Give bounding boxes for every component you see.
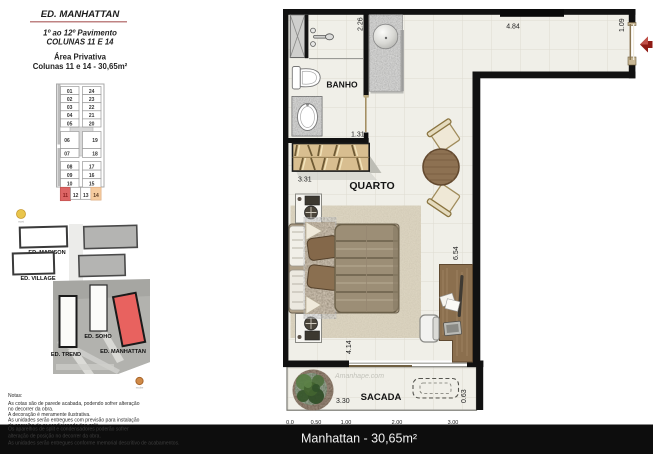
svg-text:15: 15 [89, 182, 95, 188]
svg-text:COLUNAS 11 E 14: COLUNAS 11 E 14 [46, 38, 114, 47]
svg-text:3.30: 3.30 [336, 398, 350, 405]
svg-text:mube: mube [136, 386, 144, 390]
svg-text:2.26: 2.26 [358, 17, 365, 31]
svg-text:0.63: 0.63 [461, 389, 468, 403]
svg-text:12: 12 [73, 193, 79, 199]
svg-text:ED. MANHATTAN: ED. MANHATTAN [100, 349, 146, 355]
svg-text:Amanhape.com: Amanhape.com [334, 373, 384, 380]
svg-text:04: 04 [67, 113, 73, 119]
svg-text:4.84: 4.84 [506, 24, 520, 31]
svg-text:03: 03 [67, 105, 73, 111]
svg-text:As unidades serão entregues co: As unidades serão entregues conforme mem… [8, 441, 179, 447]
svg-text:Os aparelhos de split e conden: Os aparelhos de split e condensadores po… [8, 427, 129, 433]
svg-text:QUARTO: QUARTO [349, 180, 394, 192]
svg-text:20: 20 [89, 121, 95, 127]
svg-text:22: 22 [89, 105, 95, 111]
svg-text:1.31: 1.31 [351, 132, 365, 139]
svg-text:23: 23 [89, 97, 95, 103]
svg-text:18: 18 [92, 152, 98, 158]
svg-text:Colunas 11 e 14 - 30,65m²: Colunas 11 e 14 - 30,65m² [33, 62, 128, 71]
svg-text:05: 05 [67, 121, 73, 127]
svg-text:17: 17 [89, 164, 95, 170]
svg-text:6.54: 6.54 [453, 246, 460, 260]
svg-text:BANHO: BANHO [326, 80, 358, 90]
svg-text:01: 01 [67, 89, 73, 95]
svg-text:ED. SOHO: ED. SOHO [84, 334, 112, 340]
svg-text:1.09: 1.09 [619, 18, 626, 32]
svg-text:ED. TREND: ED. TREND [51, 352, 81, 358]
svg-text:16: 16 [89, 173, 95, 179]
svg-text:14: 14 [93, 193, 99, 199]
svg-text:07: 07 [64, 152, 70, 158]
svg-text:02: 02 [67, 97, 73, 103]
svg-text:SACADA: SACADA [361, 392, 402, 403]
svg-text:1º ao 12º Pavimento: 1º ao 12º Pavimento [43, 29, 117, 38]
svg-text:Manhattan - 30,65m²: Manhattan - 30,65m² [301, 432, 417, 446]
svg-text:ED. VILLAGE: ED. VILLAGE [20, 276, 55, 282]
svg-text:10: 10 [67, 182, 73, 188]
svg-text:ED. MANHATTAN: ED. MANHATTAN [41, 9, 121, 20]
svg-text:alteração de posição no decorr: alteração de posição no decorrer da obra… [8, 434, 101, 440]
svg-text:13: 13 [83, 193, 89, 199]
svg-text:Área Privativa: Área Privativa [54, 53, 107, 62]
svg-text:21: 21 [89, 113, 95, 119]
svg-text:24: 24 [89, 89, 95, 95]
svg-text:nort: nort [18, 220, 23, 224]
svg-text:19: 19 [92, 138, 98, 144]
svg-text:3.31: 3.31 [298, 177, 312, 184]
svg-text:Notas:: Notas: [8, 393, 22, 399]
svg-text:4.14: 4.14 [346, 340, 353, 354]
svg-text:09: 09 [67, 173, 73, 179]
svg-text:08: 08 [67, 164, 73, 170]
svg-text:11: 11 [63, 193, 69, 199]
svg-text:06: 06 [64, 138, 70, 144]
